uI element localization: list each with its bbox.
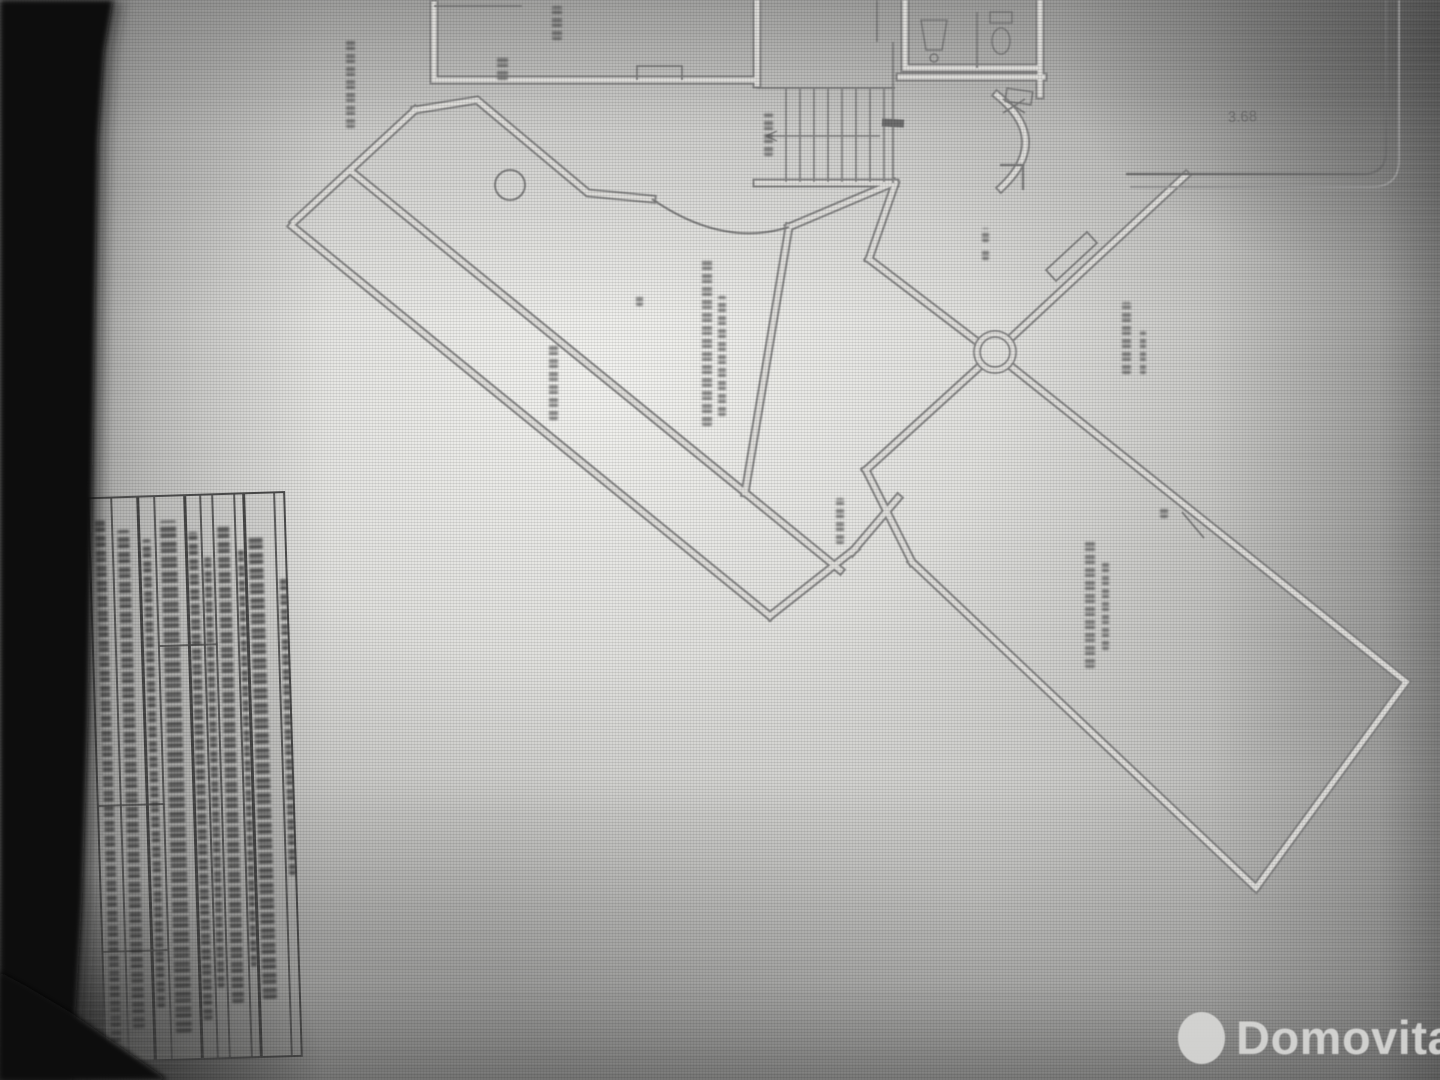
domovita-logo-circle-icon: [1178, 1012, 1225, 1064]
watermark-brand-text: Domovita: [1236, 1012, 1440, 1064]
photo-dark-borders: [0, 0, 1440, 1080]
floor-plan-photo: 3.68: [0, 0, 1440, 1080]
watermark: Domovita: [1178, 1012, 1440, 1064]
